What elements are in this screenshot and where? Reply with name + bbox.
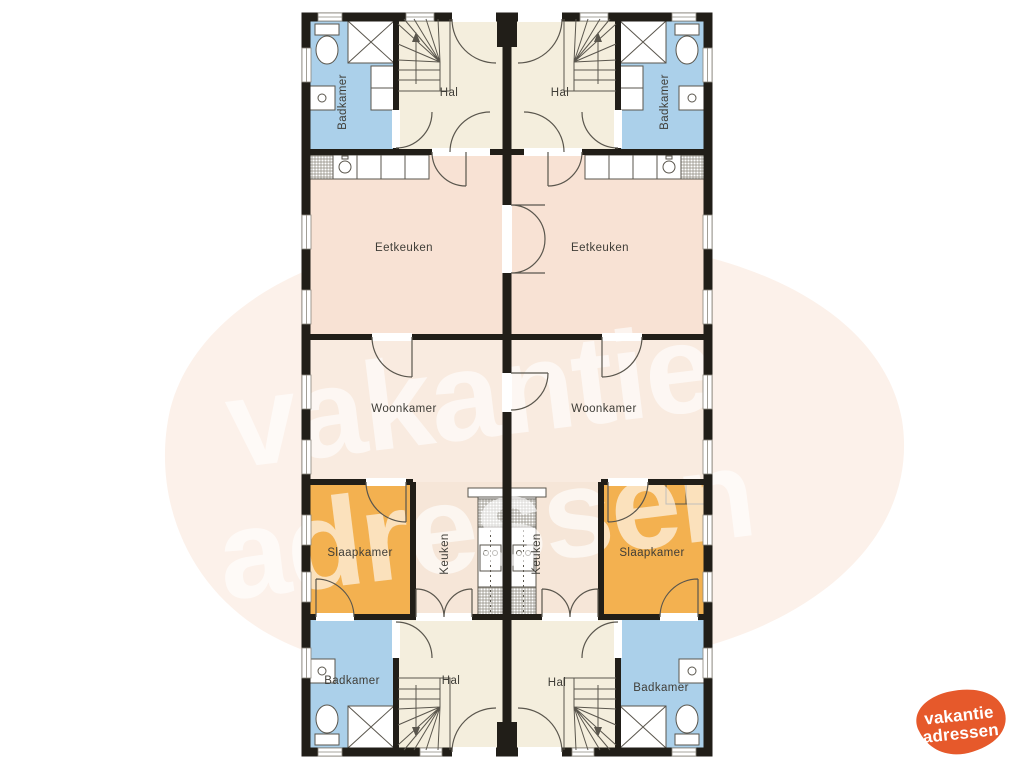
stove-icon — [309, 155, 333, 179]
shower-icon — [348, 21, 394, 63]
label-hall-top-right: Hal — [551, 87, 569, 99]
brand-logo-svg: vakantie adressen — [902, 686, 1014, 762]
shower-icon — [348, 706, 394, 748]
label-kitchen-right: Keuken — [531, 533, 543, 574]
label-dining-left: Eetkeuken — [375, 242, 433, 254]
sink-icon — [663, 161, 675, 173]
toilet-icon — [315, 24, 339, 64]
washbasin-icon — [679, 659, 705, 683]
label-dining-right: Eetkeuken — [571, 242, 629, 254]
toilet-icon — [675, 24, 699, 64]
toilet-icon — [315, 705, 339, 745]
label-bathroom-bottom-right: Badkamer — [633, 682, 689, 694]
floorplan-svg: vakantie adressen — [0, 0, 1024, 768]
dining-counter-right — [585, 155, 705, 179]
sink-icon — [339, 161, 351, 173]
entrance-porch-stub-top — [497, 17, 517, 47]
label-bathroom-bottom-left: Badkamer — [324, 675, 380, 687]
label-hall-bottom-right: Hal — [548, 677, 566, 689]
entrance-porch-stub-bottom — [497, 722, 517, 752]
toilet-icon — [675, 705, 699, 745]
label-living-right: Woonkamer — [571, 403, 636, 415]
label-hall-top-left: Hal — [440, 87, 458, 99]
washbasin-icon — [309, 86, 335, 110]
shower-icon — [620, 21, 666, 63]
cabinet-icon — [371, 66, 394, 110]
label-bedroom-left: Slaapkamer — [327, 547, 392, 559]
label-bathroom-top-left: Badkamer — [337, 74, 349, 130]
cabinet-icon — [620, 66, 643, 110]
washbasin-icon — [679, 86, 705, 110]
stove-icon — [681, 155, 705, 179]
floorplan-page: vakantie adressen — [0, 0, 1024, 768]
label-living-left: Woonkamer — [371, 403, 436, 415]
dining-counter-left — [309, 155, 429, 179]
label-hall-bottom-left: Hal — [442, 675, 460, 687]
label-kitchen-left: Keuken — [439, 533, 451, 574]
logo-text-group: vakantie adressen — [920, 702, 1000, 747]
label-bathroom-top-right: Badkamer — [659, 74, 671, 130]
brand-logo: vakantie adressen — [902, 686, 1014, 762]
shower-icon — [620, 706, 666, 748]
label-bedroom-right: Slaapkamer — [619, 547, 684, 559]
